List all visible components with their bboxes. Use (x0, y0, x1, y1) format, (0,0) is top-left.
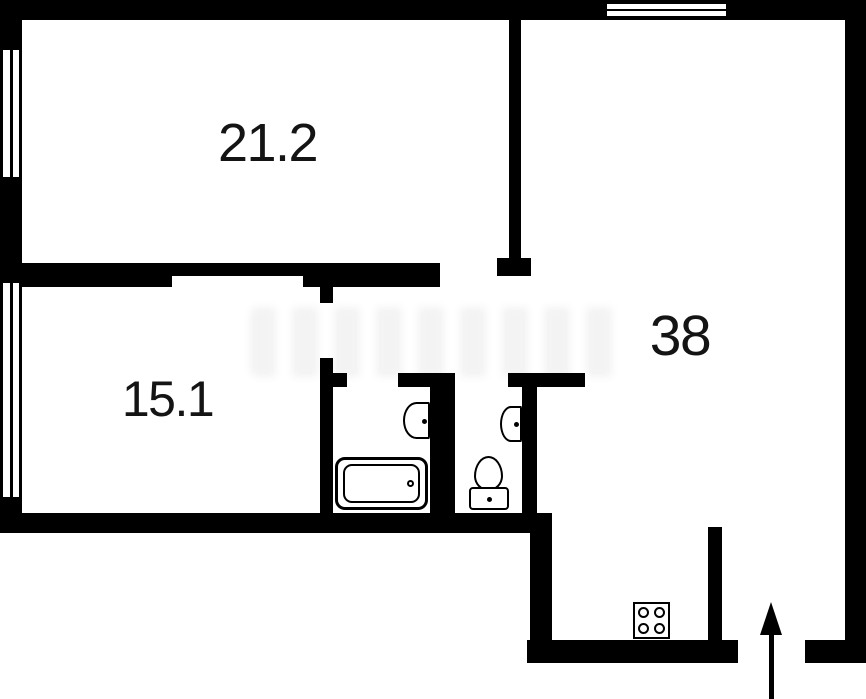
stove-4-burner-icon (633, 602, 670, 639)
wall-bathroom-divider (430, 387, 455, 513)
wall-hall-top-thin (172, 263, 303, 276)
agency-watermark (250, 307, 618, 377)
toilet-flush-button (487, 497, 492, 502)
sink-icon-bathroom (403, 402, 430, 439)
wall-right (845, 0, 866, 663)
wall-bedroom-door-jamb (320, 287, 333, 303)
sink-tap (514, 422, 519, 427)
wall-bottom-right (805, 640, 866, 663)
window-icon-top (605, 2, 728, 18)
stove-burner (654, 607, 665, 618)
wall-kitchen-partition (708, 527, 722, 640)
wall-kitchen-bottom (527, 640, 738, 663)
room-label-living: 21.2 (190, 116, 345, 170)
bathtub-icon (335, 457, 428, 510)
stove-burner (638, 607, 649, 618)
sink-tap (422, 419, 427, 424)
entrance-arrow-head (760, 602, 782, 635)
wall-hall-top-right (303, 263, 440, 287)
sink-icon-wc (500, 406, 522, 442)
floor-plan: 21.2 15.1 38 (0, 0, 866, 699)
wall-divider-living-main (509, 20, 521, 276)
bathtub-drain (407, 480, 414, 487)
room-label-kitchen-living: 38 (625, 308, 735, 365)
stove-burner (638, 623, 649, 634)
entrance-arrow-icon (769, 632, 774, 699)
room-label-bedroom: 15.1 (100, 374, 235, 424)
wall-top (0, 0, 866, 20)
toilet-tank (469, 487, 509, 510)
wall-bottom-main (0, 513, 552, 533)
wall-divider-foot (497, 258, 531, 276)
stove-burner (654, 623, 665, 634)
window-icon-bedroom (0, 283, 22, 497)
wall-left-upper (0, 0, 22, 50)
wall-wc-right (522, 387, 537, 513)
wall-hall-top-left (0, 263, 172, 287)
wall-bedroom-right (320, 358, 333, 513)
toilet-icon (474, 456, 503, 491)
window-icon-living (0, 50, 22, 177)
window-mullion (607, 9, 726, 11)
